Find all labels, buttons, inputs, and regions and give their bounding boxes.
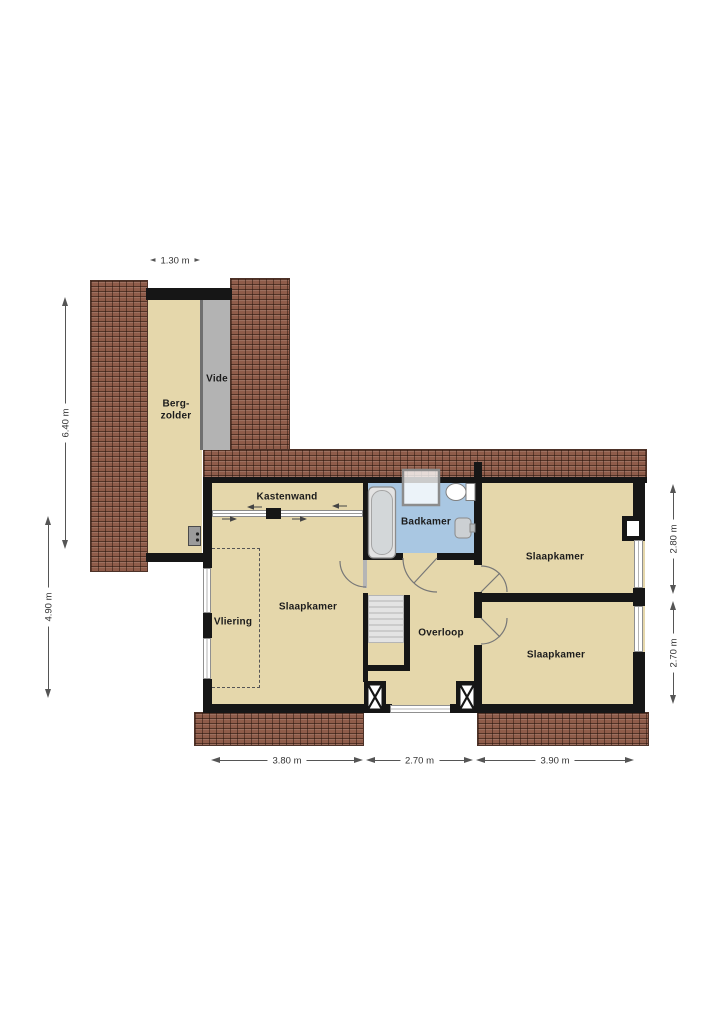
dimension-label: 2.70 m [400,756,439,767]
bathtub-basin-icon [372,491,393,555]
sliding-arrow-icons [222,503,347,522]
dimension-top-width: 1.30 m [151,255,199,267]
room-label-bergzolder: Berg- zolder [161,399,192,422]
door-leaf-badkamer [414,558,437,583]
room-label-kastenwand: Kastenwand [257,491,318,503]
dimension-left-upper: 6.40 m [60,298,72,548]
dimension-label: 2.80 m [669,519,680,558]
room-label-badkamer: Badkamer [401,516,451,528]
washbasin-icon [455,518,471,538]
boiler-knob-icon [196,532,199,535]
floor-plan-canvas: Berg- zolder Vide Kastenwand Badkamer Sl… [0,0,724,1024]
room-label-slaapkamer-left: Slaapkamer [279,601,337,613]
dimension-label: 3.90 m [535,756,574,767]
dimension-bottom-center: 2.70 m [367,755,472,767]
dimension-bottom-left: 3.80 m [212,755,362,767]
door-leaf-slaapkamer-top-right [481,573,500,592]
door-leaf-slaapkamer-bottom-right [481,618,500,637]
room-label-vide: Vide [206,373,228,385]
dimension-right-upper: 2.80 m [668,485,680,593]
room-label-overloop: Overloop [418,627,464,639]
fixtures-overlay [0,0,724,1024]
dimension-left-lower: 4.90 m [43,517,55,697]
boiler-knob-icon [196,538,199,541]
dimension-label: 1.30 m [155,256,194,267]
room-label-vliering: Vliering [214,616,252,628]
room-label-slaapkamer-bottom-right: Slaapkamer [527,649,585,661]
washbasin-tap-icon [470,524,475,532]
masonry-column-right [456,681,478,713]
shower-cabin-icon [403,470,439,505]
dimension-label: 4.90 m [44,587,55,626]
dimension-label: 6.40 m [61,403,72,442]
dimension-label: 3.80 m [267,756,306,767]
dimension-right-lower: 2.70 m [668,602,680,703]
door-arc-slaapkamer-left [340,561,366,587]
dimension-label: 2.70 m [669,633,680,672]
dimension-bottom-right: 3.90 m [477,755,633,767]
masonry-column-left [364,681,386,713]
toilet-icon [446,484,466,501]
room-label-slaapkamer-top-right: Slaapkamer [526,551,584,563]
toilet-tank-icon [466,484,475,501]
